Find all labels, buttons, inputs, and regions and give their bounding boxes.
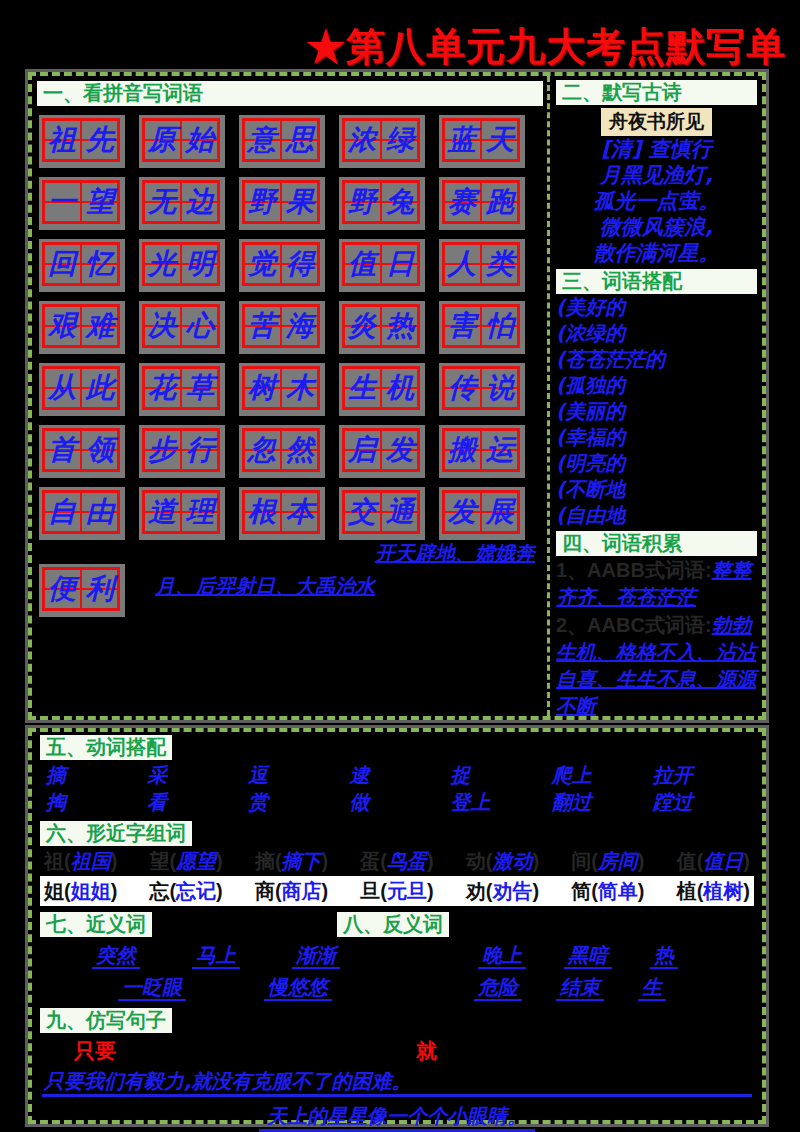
verb-item: 蹚过	[653, 790, 754, 814]
char-answer: 激动	[492, 849, 532, 873]
similar-char-item: 间(房间)	[571, 848, 644, 874]
sentence-answer-2: 天上的星星像一个个小眼睛。	[259, 1103, 535, 1132]
aabb-words: 1、AABB式词语:整整齐齐、苍苍茫茫	[556, 557, 757, 611]
char-prompt: 旦(	[360, 880, 387, 902]
pinyin-word-block: 便利	[39, 564, 125, 617]
char-suffix: )	[322, 850, 329, 872]
tianzige-grid: 便利	[42, 567, 120, 611]
antonym-item: 生	[638, 975, 666, 1001]
char-prompt: 忘(	[149, 880, 176, 902]
syn-ant-row-1: 突然马上渐渐 晚上黑暗热	[40, 943, 754, 969]
pinyin-row-1: 祖先原始意思浓绿蓝天	[39, 115, 543, 168]
pinyin-word-block: 觉得	[239, 239, 325, 292]
synonym-item: 突然	[92, 943, 140, 969]
pinyin-word-block: 首领	[39, 425, 125, 478]
verb-row-1: 摘采逗逮捉爬上拉开	[46, 763, 754, 787]
similar-char-item: 望(愿望)	[149, 848, 222, 874]
poem-line: 微微风簇浪,	[556, 214, 757, 240]
tianzige-grid: 步行	[142, 428, 220, 472]
pinyin-word: 首领	[48, 434, 124, 466]
char-prompt: 动(	[466, 850, 493, 872]
pinyin-word-block: 忽然	[239, 425, 325, 478]
right-column: 二、默写古诗 舟夜书所见 [清] 查慎行 月黑见渔灯,孤光一点萤。微微风簇浪,散…	[550, 76, 762, 716]
char-suffix: )	[743, 880, 750, 902]
poem-body: 月黑见渔灯,孤光一点萤。微微风簇浪,散作满河星。	[556, 162, 757, 266]
pinyin-word: 忽然	[248, 434, 324, 466]
pinyin-word: 光明	[148, 248, 224, 280]
section5-heading: 五、动词搭配	[40, 735, 172, 760]
collocation-item: (幸福的	[556, 424, 757, 450]
pinyin-word: 便利	[48, 573, 124, 605]
pinyin-word: 搬运	[448, 434, 524, 466]
pinyin-word: 根本	[248, 496, 324, 528]
pinyin-word: 炎热	[348, 310, 424, 342]
similar-char-item: 值(值日)	[677, 848, 750, 874]
char-suffix: )	[111, 850, 118, 872]
aabb-prompt: 1、AABB式词语:	[556, 559, 712, 581]
pinyin-row-3: 回忆光明觉得值日人类	[39, 239, 543, 292]
tianzige-grid: 原始	[142, 118, 220, 162]
pinyin-word: 树木	[248, 372, 324, 404]
verb-item: 拉开	[653, 763, 754, 787]
pinyin-row-5: 从此花草树木生机传说	[39, 363, 543, 416]
tianzige-grid: 回忆	[42, 242, 120, 286]
synonym-item: 渐渐	[292, 943, 340, 969]
pinyin-word-block: 祖先	[39, 115, 125, 168]
tianzige-grid: 根本	[242, 490, 320, 534]
pinyin-word-block: 决心	[139, 301, 225, 354]
pinyin-word: 发展	[448, 496, 524, 528]
pinyin-word-block: 值日	[339, 239, 425, 292]
pinyin-word-block: 苦海	[239, 301, 325, 354]
tianzige-grid: 花草	[142, 366, 220, 410]
char-suffix: )	[427, 880, 434, 902]
pinyin-word: 值日	[348, 248, 424, 280]
pinyin-word: 野兔	[348, 186, 424, 218]
example-sentence: 只要就	[74, 1038, 754, 1064]
sentence-answer-1: 只要我们有毅力,就没有克服不了的困难。	[42, 1068, 752, 1097]
pinyin-word: 野果	[248, 186, 324, 218]
tianzige-grid: 启发	[342, 428, 420, 472]
tianzige-grid: 发展	[442, 490, 520, 534]
pinyin-word-block: 赛跑	[439, 177, 525, 230]
top-panel: 一、看拼音写词语 祖先原始意思浓绿蓝天 一望无边野果野兔赛跑 回忆光明觉得值日人…	[28, 72, 766, 720]
tianzige-grid: 赛跑	[442, 180, 520, 224]
pinyin-word: 一望	[48, 186, 124, 218]
pinyin-section: 一、看拼音写词语 祖先原始意思浓绿蓝天 一望无边野果野兔赛跑 回忆光明觉得值日人…	[32, 76, 550, 716]
char-suffix: )	[638, 850, 645, 872]
char-answer: 姐姐	[71, 879, 111, 903]
pinyin-word: 花草	[148, 372, 224, 404]
pinyin-row-2: 一望无边野果野兔赛跑	[39, 177, 543, 230]
similar-char-item: 忘(忘记)	[149, 876, 222, 906]
char-suffix: )	[111, 880, 118, 902]
similar-char-item: 植(植树)	[677, 876, 750, 906]
pinyin-word: 无边	[148, 186, 224, 218]
pinyin-word-block: 从此	[39, 363, 125, 416]
similar-char-item: 姐(姐姐)	[44, 876, 117, 906]
bottom-panel: 五、动词搭配 摘采逗逮捉爬上拉开 掏看赏做登上翻过蹚过 六、形近字组词 祖(祖国…	[28, 728, 766, 1124]
synonym-item: 一眨眼	[118, 975, 186, 1001]
pinyin-word-block: 回忆	[39, 239, 125, 292]
page-title: ★第八单元九大考点默写单	[0, 20, 786, 74]
char-prompt: 简(	[571, 880, 598, 902]
similar-char-item: 动(激动)	[466, 848, 539, 874]
tianzige-grid: 害怕	[442, 304, 520, 348]
synonym-item: 慢悠悠	[264, 975, 332, 1001]
pinyin-word: 启发	[348, 434, 424, 466]
pinyin-word: 浓绿	[348, 124, 424, 156]
section2-heading: 二、默写古诗	[556, 80, 757, 105]
tianzige-grid: 交通	[342, 490, 420, 534]
char-answer: 劝告	[492, 879, 532, 903]
pinyin-word-block: 交通	[339, 487, 425, 540]
pinyin-word: 生机	[348, 372, 424, 404]
tianzige-grid: 野兔	[342, 180, 420, 224]
verb-item: 摘	[46, 763, 147, 787]
pinyin-word-block: 艰难	[39, 301, 125, 354]
pinyin-word-block: 树木	[239, 363, 325, 416]
tianzige-grid: 艰难	[42, 304, 120, 348]
collocation-item: (美好的	[556, 294, 757, 320]
legend-answer-line-2: 月、后羿射日、大禹治水	[155, 574, 375, 598]
verb-item: 做	[349, 790, 450, 814]
antonym-item: 黑暗	[564, 943, 612, 969]
pinyin-word-block: 野果	[239, 177, 325, 230]
poem-line: 散作满河星。	[556, 240, 757, 266]
syn-ant-row-2: 一眨眼慢悠悠 危险结束生	[40, 975, 754, 1001]
char-prompt: 祖(	[44, 850, 71, 872]
pinyin-word-block: 意思	[239, 115, 325, 168]
pinyin-word: 从此	[48, 372, 124, 404]
similar-char-item: 祖(祖国)	[44, 848, 117, 874]
antonym-item: 结束	[556, 975, 604, 1001]
similar-char-item: 简(简单)	[571, 876, 644, 906]
pinyin-word-block: 发展	[439, 487, 525, 540]
pinyin-word-block: 步行	[139, 425, 225, 478]
char-answer: 鸟蛋	[387, 849, 427, 873]
poem-author: [清] 查慎行	[556, 136, 757, 162]
pinyin-word: 回忆	[48, 248, 124, 280]
pinyin-word: 赛跑	[448, 186, 524, 218]
antonym-item: 晚上	[478, 943, 526, 969]
verb-row-2: 掏看赏做登上翻过蹚过	[46, 790, 754, 814]
tianzige-grid: 决心	[142, 304, 220, 348]
collocation-item: (苍苍茫茫的	[556, 346, 757, 372]
pinyin-word-block: 野兔	[339, 177, 425, 230]
pinyin-row-4: 艰难决心苦海炎热害怕	[39, 301, 543, 354]
pinyin-word-block: 光明	[139, 239, 225, 292]
section9-heading: 九、仿写句子	[40, 1008, 172, 1033]
verb-item: 赏	[248, 790, 349, 814]
legend-answer-line-1: 开天辟地、嫦娥奔	[37, 542, 535, 564]
tianzige-grid: 自由	[42, 490, 120, 534]
poem-title: 舟夜书所见	[601, 108, 712, 136]
pinyin-word: 步行	[148, 434, 224, 466]
synonym-answers-2: 一眨眼慢悠悠	[40, 975, 440, 1001]
char-answer: 愿望	[176, 849, 216, 873]
pinyin-word: 自由	[48, 496, 124, 528]
verb-item: 掏	[46, 790, 147, 814]
pinyin-row-6: 首领步行忽然启发搬运	[39, 425, 543, 478]
similar-char-item: 蛋(鸟蛋)	[360, 848, 433, 874]
char-suffix: )	[322, 880, 329, 902]
conjunction-word-2: 就	[416, 1038, 437, 1063]
char-prompt: 摘(	[255, 850, 282, 872]
tianzige-grid: 野果	[242, 180, 320, 224]
collocation-item: (不断地	[556, 476, 757, 502]
pinyin-word-block: 根本	[239, 487, 325, 540]
pinyin-word: 交通	[348, 496, 424, 528]
antonym-item: 危险	[474, 975, 522, 1001]
similar-char-item: 商(商店)	[255, 876, 328, 906]
char-answer: 摘下	[282, 849, 322, 873]
pinyin-word: 蓝天	[448, 124, 524, 156]
tianzige-grid: 搬运	[442, 428, 520, 472]
pinyin-word: 意思	[248, 124, 324, 156]
similar-char-row-1: 祖(祖国)望(愿望)摘(摘下)蛋(鸟蛋)动(激动)间(房间)值(值日)	[40, 848, 754, 874]
verb-item: 爬上	[552, 763, 653, 787]
pinyin-word: 道理	[148, 496, 224, 528]
char-prompt: 姐(	[44, 880, 71, 902]
pinyin-word-block: 花草	[139, 363, 225, 416]
similar-char-item: 劝(劝告)	[466, 876, 539, 906]
tianzige-grid: 首领	[42, 428, 120, 472]
char-answer: 商店	[282, 879, 322, 903]
tianzige-grid: 生机	[342, 366, 420, 410]
conjunction-word-1: 只要	[74, 1038, 116, 1063]
tianzige-grid: 蓝天	[442, 118, 520, 162]
tianzige-grid: 道理	[142, 490, 220, 534]
tianzige-grid: 无边	[142, 180, 220, 224]
poem-line: 月黑见渔灯,	[556, 162, 757, 188]
pinyin-word: 害怕	[448, 310, 524, 342]
char-prompt: 劝(	[466, 880, 493, 902]
collocation-item: (美丽的	[556, 398, 757, 424]
char-answer: 植树	[703, 879, 743, 903]
section7-heading: 七、近义词	[40, 912, 152, 937]
pinyin-word: 苦海	[248, 310, 324, 342]
verb-item: 登上	[451, 790, 552, 814]
pinyin-word-block: 人类	[439, 239, 525, 292]
pinyin-word: 决心	[148, 310, 224, 342]
pinyin-word-block: 害怕	[439, 301, 525, 354]
verb-item: 逮	[349, 763, 450, 787]
poem-line: 孤光一点萤。	[556, 188, 757, 214]
char-suffix: )	[216, 850, 223, 872]
char-prompt: 值(	[677, 850, 704, 872]
char-prompt: 间(	[571, 850, 598, 872]
antonym-answers-1: 晚上黑暗热	[440, 943, 754, 969]
pinyin-word-block: 蓝天	[439, 115, 525, 168]
pinyin-word-block: 道理	[139, 487, 225, 540]
tianzige-grid: 意思	[242, 118, 320, 162]
verb-item: 捉	[451, 763, 552, 787]
char-answer: 祖国	[71, 849, 111, 873]
tianzige-grid: 一望	[42, 180, 120, 224]
char-suffix: )	[638, 880, 645, 902]
char-answer: 房间	[598, 849, 638, 873]
tianzige-grid: 从此	[42, 366, 120, 410]
pinyin-word: 祖先	[48, 124, 124, 156]
similar-char-item: 摘(摘下)	[255, 848, 328, 874]
collocation-list: (美好的(浓绿的(苍苍茫茫的(孤独的(美丽的(幸福的(明亮的(不断地(自由地	[556, 294, 757, 528]
pinyin-row-7: 自由道理根本交通发展	[39, 487, 543, 540]
aabc-words: 2、AABC式词语:勃勃生机、格格不入、沾沾自喜、生生不息、源源不断	[556, 612, 757, 720]
tianzige-grid: 苦海	[242, 304, 320, 348]
pinyin-word-block: 启发	[339, 425, 425, 478]
char-suffix: )	[532, 880, 539, 902]
section8-heading: 八、反义词	[337, 912, 449, 937]
char-prompt: 植(	[677, 880, 704, 902]
char-prompt: 蛋(	[360, 850, 387, 872]
pinyin-word: 觉得	[248, 248, 324, 280]
pinyin-word: 艰难	[48, 310, 124, 342]
verb-item: 看	[147, 790, 248, 814]
pinyin-word: 人类	[448, 248, 524, 280]
pinyin-word: 传说	[448, 372, 524, 404]
pinyin-word-block: 传说	[439, 363, 525, 416]
pinyin-word-block: 炎热	[339, 301, 425, 354]
char-prompt: 商(	[255, 880, 282, 902]
char-answer: 值日	[703, 849, 743, 873]
section6-heading: 六、形近字组词	[40, 821, 192, 846]
tianzige-grid: 人类	[442, 242, 520, 286]
section1-heading: 一、看拼音写词语	[37, 81, 543, 106]
tianzige-grid: 祖先	[42, 118, 120, 162]
aabc-prompt: 2、AABC式词语:	[556, 614, 712, 636]
antonym-item: 热	[650, 943, 678, 969]
tianzige-grid: 树木	[242, 366, 320, 410]
pinyin-word-block: 自由	[39, 487, 125, 540]
char-answer: 忘记	[176, 879, 216, 903]
char-prompt: 望(	[149, 850, 176, 872]
synonym-answers-1: 突然马上渐渐	[40, 943, 440, 969]
tianzige-grid: 觉得	[242, 242, 320, 286]
pinyin-word: 原始	[148, 124, 224, 156]
char-suffix: )	[216, 880, 223, 902]
tianzige-grid: 光明	[142, 242, 220, 286]
collocation-item: (浓绿的	[556, 320, 757, 346]
collocation-item: (明亮的	[556, 450, 757, 476]
char-answer: 简单	[598, 879, 638, 903]
similar-char-item: 旦(元旦)	[360, 876, 433, 906]
pinyin-word-block: 搬运	[439, 425, 525, 478]
pinyin-word-block: 一望	[39, 177, 125, 230]
synonym-item: 马上	[192, 943, 240, 969]
char-suffix: )	[532, 850, 539, 872]
section3-heading: 三、词语搭配	[556, 269, 757, 294]
similar-char-row-2: 姐(姐姐)忘(忘记)商(商店)旦(元旦)劝(劝告)简(简单)植(植树)	[40, 876, 754, 906]
collocation-item: (自由地	[556, 502, 757, 528]
tianzige-grid: 忽然	[242, 428, 320, 472]
pinyin-word-block: 无边	[139, 177, 225, 230]
char-answer: 元旦	[387, 879, 427, 903]
pinyin-row-8: 便利 月、后羿射日、大禹治水	[37, 564, 543, 617]
char-suffix: )	[743, 850, 750, 872]
verb-item: 采	[147, 763, 248, 787]
tianzige-grid: 炎热	[342, 304, 420, 348]
verb-item: 逗	[248, 763, 349, 787]
section4-heading: 四、词语积累	[556, 531, 757, 556]
pinyin-word-block: 原始	[139, 115, 225, 168]
tianzige-grid: 值日	[342, 242, 420, 286]
pinyin-word-block: 生机	[339, 363, 425, 416]
tianzige-grid: 传说	[442, 366, 520, 410]
collocation-item: (孤独的	[556, 372, 757, 398]
antonym-answers-2: 危险结束生	[440, 975, 754, 1001]
char-suffix: )	[427, 850, 434, 872]
tianzige-grid: 浓绿	[342, 118, 420, 162]
verb-item: 翻过	[552, 790, 653, 814]
pinyin-word-block: 浓绿	[339, 115, 425, 168]
